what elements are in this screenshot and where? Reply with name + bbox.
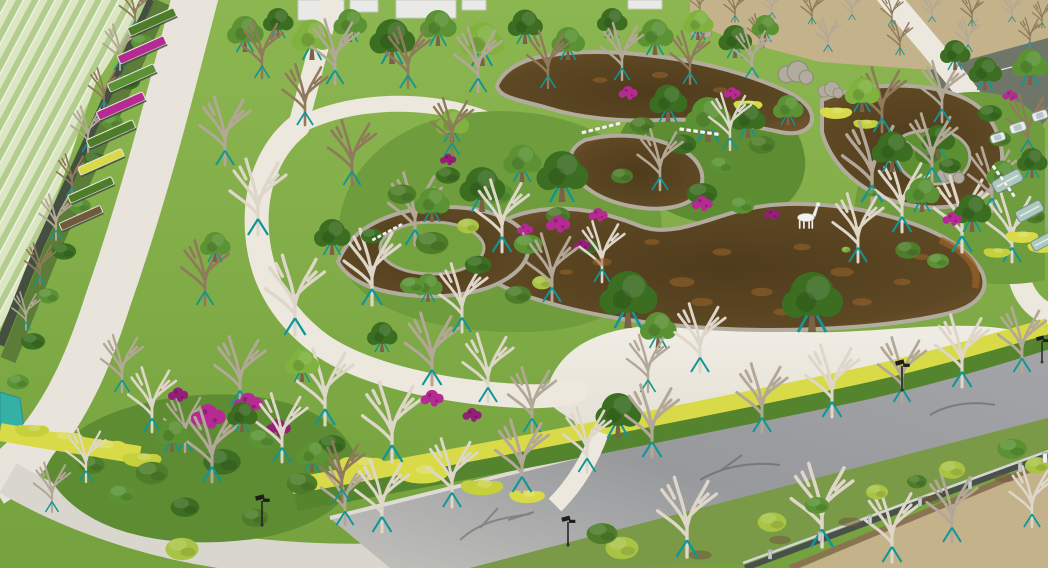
shrub (805, 497, 829, 514)
shrub (927, 254, 949, 269)
shrub (907, 475, 927, 489)
aerial-park-photo (0, 0, 1048, 568)
pond-debris (688, 550, 711, 559)
shrub (587, 523, 618, 544)
shrub (171, 497, 200, 517)
pond-debris (919, 496, 941, 504)
pond-debris (644, 239, 659, 245)
shrub (505, 286, 531, 304)
pond-debris (652, 72, 668, 78)
shrub (867, 190, 877, 197)
shrub (978, 105, 1002, 122)
shrub (997, 439, 1027, 459)
pond-debris (713, 87, 727, 93)
fence-post (818, 532, 823, 541)
shrub (166, 538, 199, 561)
shrub (730, 197, 754, 214)
scene-svg (0, 0, 1048, 568)
shrub (749, 136, 775, 154)
fence-post (768, 550, 773, 559)
pond-debris (559, 269, 573, 274)
pond-debris (769, 536, 791, 544)
shrub (611, 169, 633, 184)
pond-debris (793, 244, 810, 251)
pond-debris (838, 517, 861, 526)
pond-debris (852, 298, 872, 306)
pond-debris (593, 77, 607, 83)
fence-post (868, 515, 873, 524)
pond-debris (669, 277, 694, 287)
fence-post (918, 497, 923, 506)
shrub (242, 509, 268, 527)
pond-debris (713, 248, 732, 255)
shrub (108, 485, 136, 504)
shrub (436, 167, 460, 184)
shrub (842, 247, 851, 253)
shrub (758, 512, 787, 532)
pond-debris (751, 288, 773, 296)
fence-post (1018, 463, 1023, 472)
pond-debris (830, 267, 853, 276)
pond-debris (914, 254, 929, 260)
pond-debris (893, 279, 910, 286)
shrub (710, 157, 734, 174)
fence-post (968, 480, 973, 489)
shrub (21, 333, 45, 350)
shrub (457, 219, 479, 234)
shrub (37, 289, 59, 304)
fence-post (1042, 451, 1048, 463)
shrub (866, 485, 888, 500)
pond-debris (592, 258, 612, 266)
shrub (416, 232, 449, 255)
pond-debris (691, 298, 713, 306)
shrub (465, 256, 491, 274)
shrub (287, 473, 318, 494)
shrub (400, 277, 424, 294)
shrub (136, 462, 169, 485)
shrub (939, 159, 961, 174)
shrub (939, 461, 965, 479)
shrub (388, 184, 417, 204)
shrub (7, 375, 29, 390)
